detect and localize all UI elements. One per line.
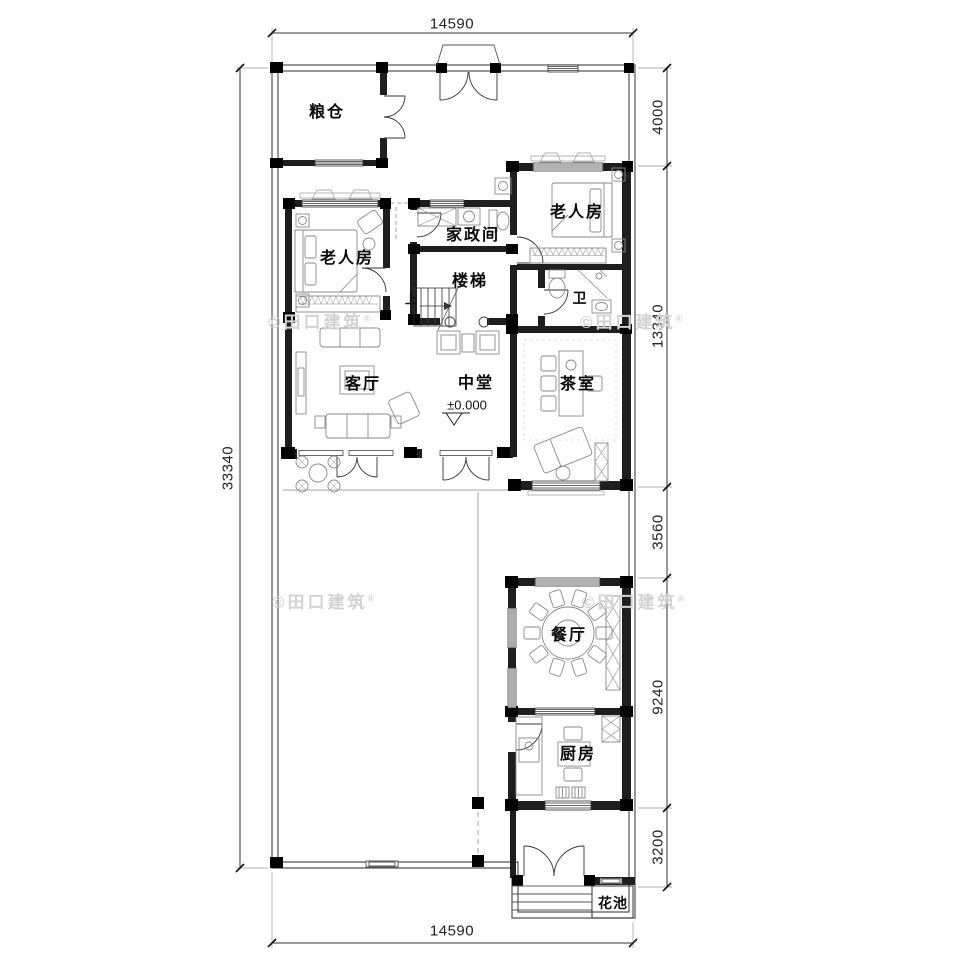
room-label-bathroom: 卫	[573, 288, 588, 308]
furniture-tea	[524, 340, 616, 481]
watermark: ©田口建筑®	[582, 588, 684, 613]
room-label-granary: 粮仓	[309, 98, 345, 122]
level-annotation: ±0.000	[447, 398, 487, 413]
furniture-porch-table	[296, 456, 340, 492]
watermark: ©田口建筑®	[272, 588, 374, 613]
watermark: ©田口建筑®	[268, 308, 370, 333]
room-label-tea: 茶室	[560, 370, 596, 394]
dim-right-3200: 3200	[650, 829, 667, 864]
dim-left: 33340	[220, 446, 237, 490]
dim-right-4000: 4000	[650, 99, 667, 134]
room-label-hall: 中堂	[458, 369, 494, 393]
room-label-living: 客厅	[345, 370, 381, 394]
stairs-up-label: 上	[405, 291, 417, 308]
room-label-stairs: 楼梯	[452, 267, 488, 291]
room-label-dining: 餐厅	[551, 621, 587, 645]
dim-right-3560: 3560	[650, 514, 667, 549]
dim-right-9240: 9240	[650, 679, 667, 714]
room-label-housekeeping: 家政间	[446, 221, 500, 245]
watermark: ©田口建筑®	[580, 308, 682, 333]
room-label-flowerbed: 花池	[598, 893, 628, 913]
room-label-elder-right: 老人房	[550, 198, 604, 222]
dim-bottom: 14590	[430, 923, 474, 940]
floor-plan-page: 粮仓 老人房 家政间 楼梯 老人房 卫 客厅 中堂 茶室 餐厅 厨房 花池 ±0…	[0, 0, 960, 960]
room-label-elder-left: 老人房	[320, 244, 374, 268]
room-label-kitchen: 厨房	[560, 740, 596, 764]
dim-top: 14590	[430, 16, 474, 33]
level-marker	[442, 413, 470, 425]
floor-plan-drawing	[0, 0, 960, 960]
courtyard-lines	[283, 203, 510, 855]
entrance-steps	[512, 886, 592, 918]
